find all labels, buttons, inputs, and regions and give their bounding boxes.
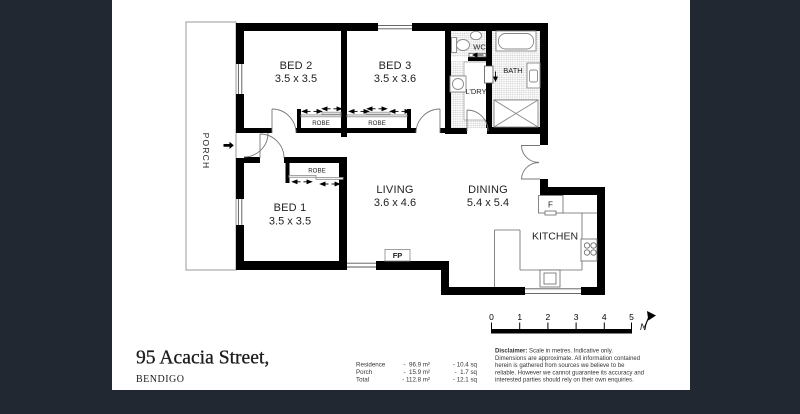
- svg-text:herein is gathered from source: herein is gathered from sources we belie…: [495, 363, 625, 369]
- svg-text:1: 1: [517, 312, 522, 322]
- svg-text:ROBE: ROBE: [308, 168, 326, 175]
- svg-text:reliable. However we cannot gu: reliable. However we cannot guarantee it…: [495, 370, 644, 376]
- svg-text:ROBE: ROBE: [312, 120, 330, 127]
- svg-text:BATH: BATH: [503, 66, 522, 75]
- svg-text:Disclaimer: Scale in metres. I: Disclaimer: Scale in metres. Indicative …: [495, 349, 613, 355]
- svg-text:KITCHEN: KITCHEN: [532, 231, 578, 243]
- svg-text:0: 0: [489, 312, 494, 322]
- svg-text:interested parties should rely: interested parties should rely on their …: [495, 378, 634, 384]
- svg-text:BED 2: BED 2: [280, 60, 313, 72]
- svg-text:- 12.1 sq: - 12.1 sq: [453, 377, 478, 384]
- svg-text:5.4 x 5.4: 5.4 x 5.4: [467, 197, 509, 209]
- svg-text:2: 2: [546, 312, 551, 322]
- svg-text:- 112.8 m²: - 112.8 m²: [402, 377, 430, 384]
- svg-text:Total: Total: [356, 377, 369, 384]
- svg-text:BED 3: BED 3: [379, 60, 412, 72]
- svg-text:F: F: [548, 201, 553, 210]
- svg-text:- 15.9 m²: - 15.9 m²: [404, 369, 430, 376]
- svg-text:- 1.7 sq: - 1.7 sq: [455, 369, 478, 376]
- svg-text:L’DRY: L’DRY: [465, 87, 486, 96]
- svg-text:N: N: [640, 322, 647, 332]
- svg-text:WC: WC: [473, 43, 486, 52]
- svg-text:LIVING: LIVING: [376, 184, 413, 196]
- svg-text:- 96.9 m²: - 96.9 m²: [404, 362, 430, 369]
- svg-text:3.5 x 3.5: 3.5 x 3.5: [269, 216, 311, 228]
- svg-text:3: 3: [574, 312, 579, 322]
- svg-text:FP: FP: [393, 251, 403, 260]
- svg-text:BED 1: BED 1: [274, 202, 307, 214]
- svg-text:4: 4: [602, 312, 607, 322]
- svg-text:Residence: Residence: [356, 362, 386, 369]
- svg-text:DINING: DINING: [468, 184, 508, 196]
- svg-text:5: 5: [629, 312, 634, 322]
- svg-text:Dimensions are approximate. Al: Dimensions are approximate. All informat…: [495, 356, 640, 362]
- svg-text:95 Acacia Street,: 95 Acacia Street,: [136, 348, 269, 369]
- svg-text:- 10.4 sq: - 10.4 sq: [453, 362, 478, 369]
- svg-text:PORCH: PORCH: [201, 133, 211, 170]
- svg-text:ROBE: ROBE: [368, 120, 386, 127]
- svg-text:3.6 x 4.6: 3.6 x 4.6: [374, 197, 416, 209]
- svg-text:3.5 x 3.5: 3.5 x 3.5: [275, 73, 317, 85]
- svg-text:BENDIGO: BENDIGO: [136, 374, 185, 385]
- svg-text:Porch: Porch: [356, 369, 373, 376]
- svg-text:3.5 x 3.6: 3.5 x 3.6: [374, 73, 416, 85]
